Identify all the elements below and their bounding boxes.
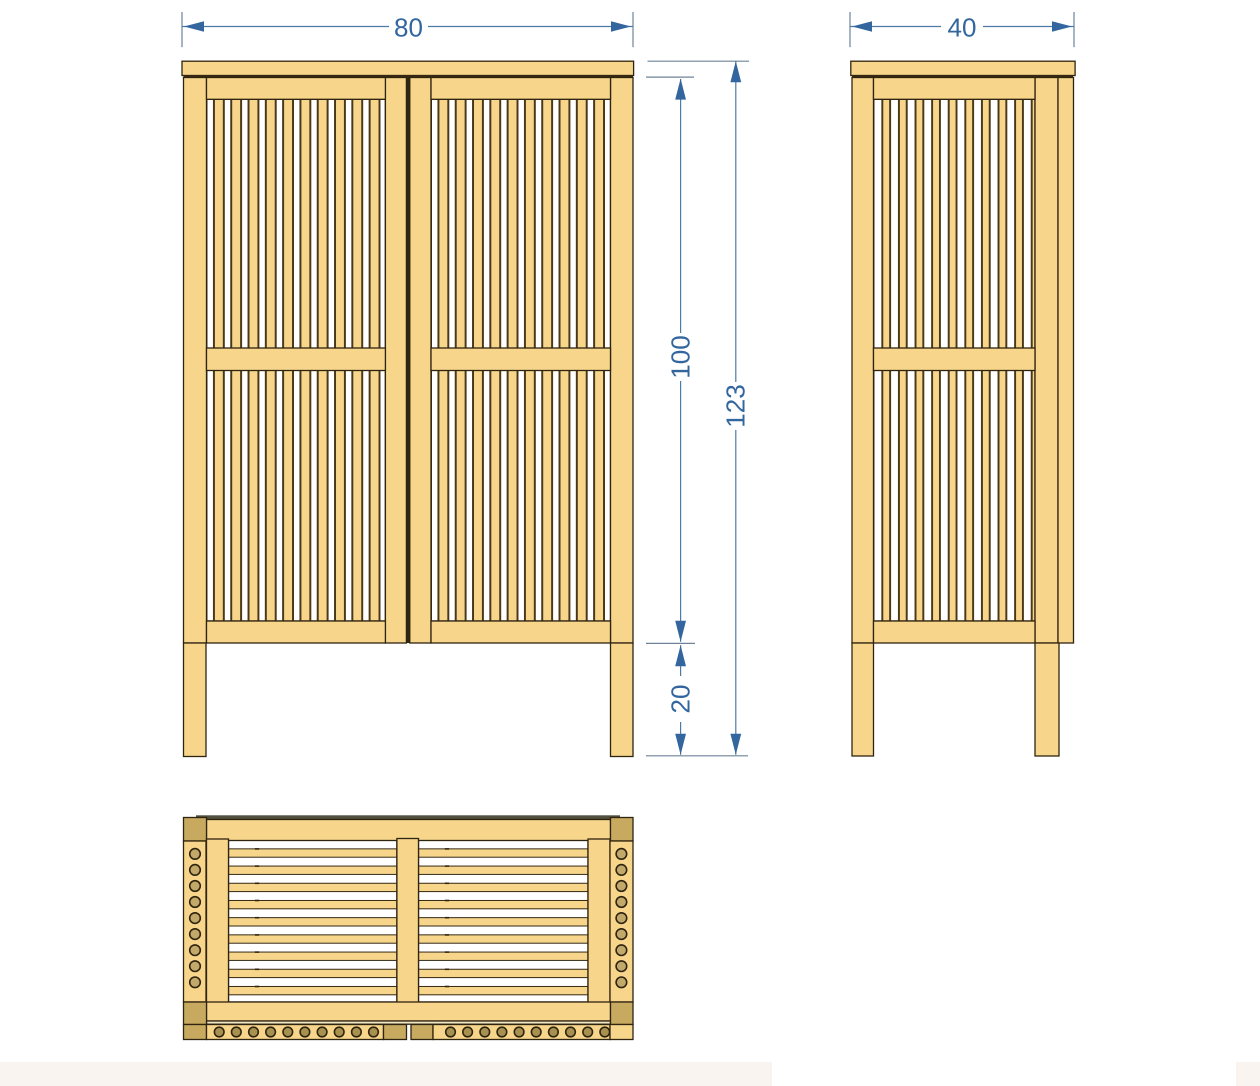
svg-text:100: 100 [665, 335, 695, 378]
svg-text:123: 123 [721, 384, 751, 427]
svg-text:40: 40 [948, 12, 977, 42]
svg-text:20: 20 [665, 685, 695, 714]
svg-text:80: 80 [394, 12, 423, 42]
